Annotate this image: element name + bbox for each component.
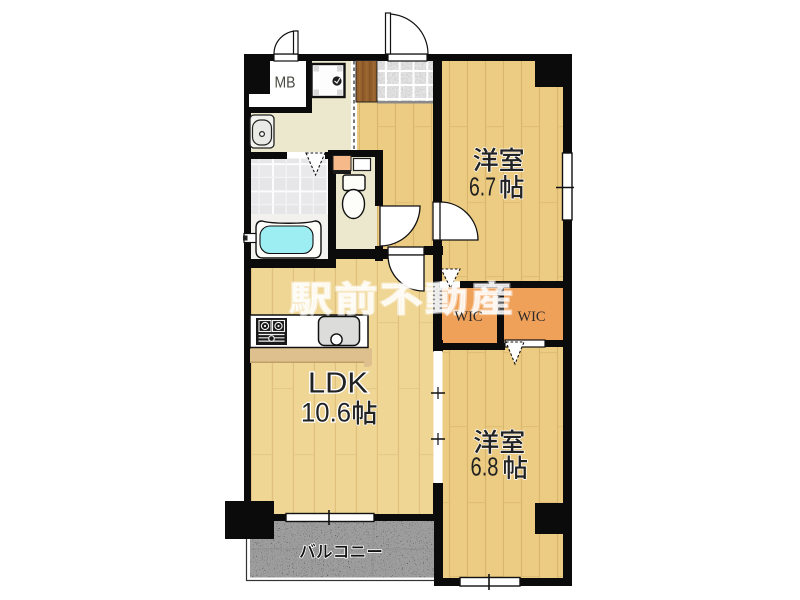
svg-text:WIC: WIC [455, 309, 483, 325]
svg-text:6.8: 6.8 [471, 452, 499, 482]
svg-text:WIC: WIC [518, 309, 546, 325]
svg-text:LDK: LDK [308, 368, 368, 400]
svg-text:6.7: 6.7 [469, 172, 496, 202]
svg-text:MB: MB [275, 75, 296, 92]
svg-text:10.6: 10.6 [301, 398, 351, 428]
